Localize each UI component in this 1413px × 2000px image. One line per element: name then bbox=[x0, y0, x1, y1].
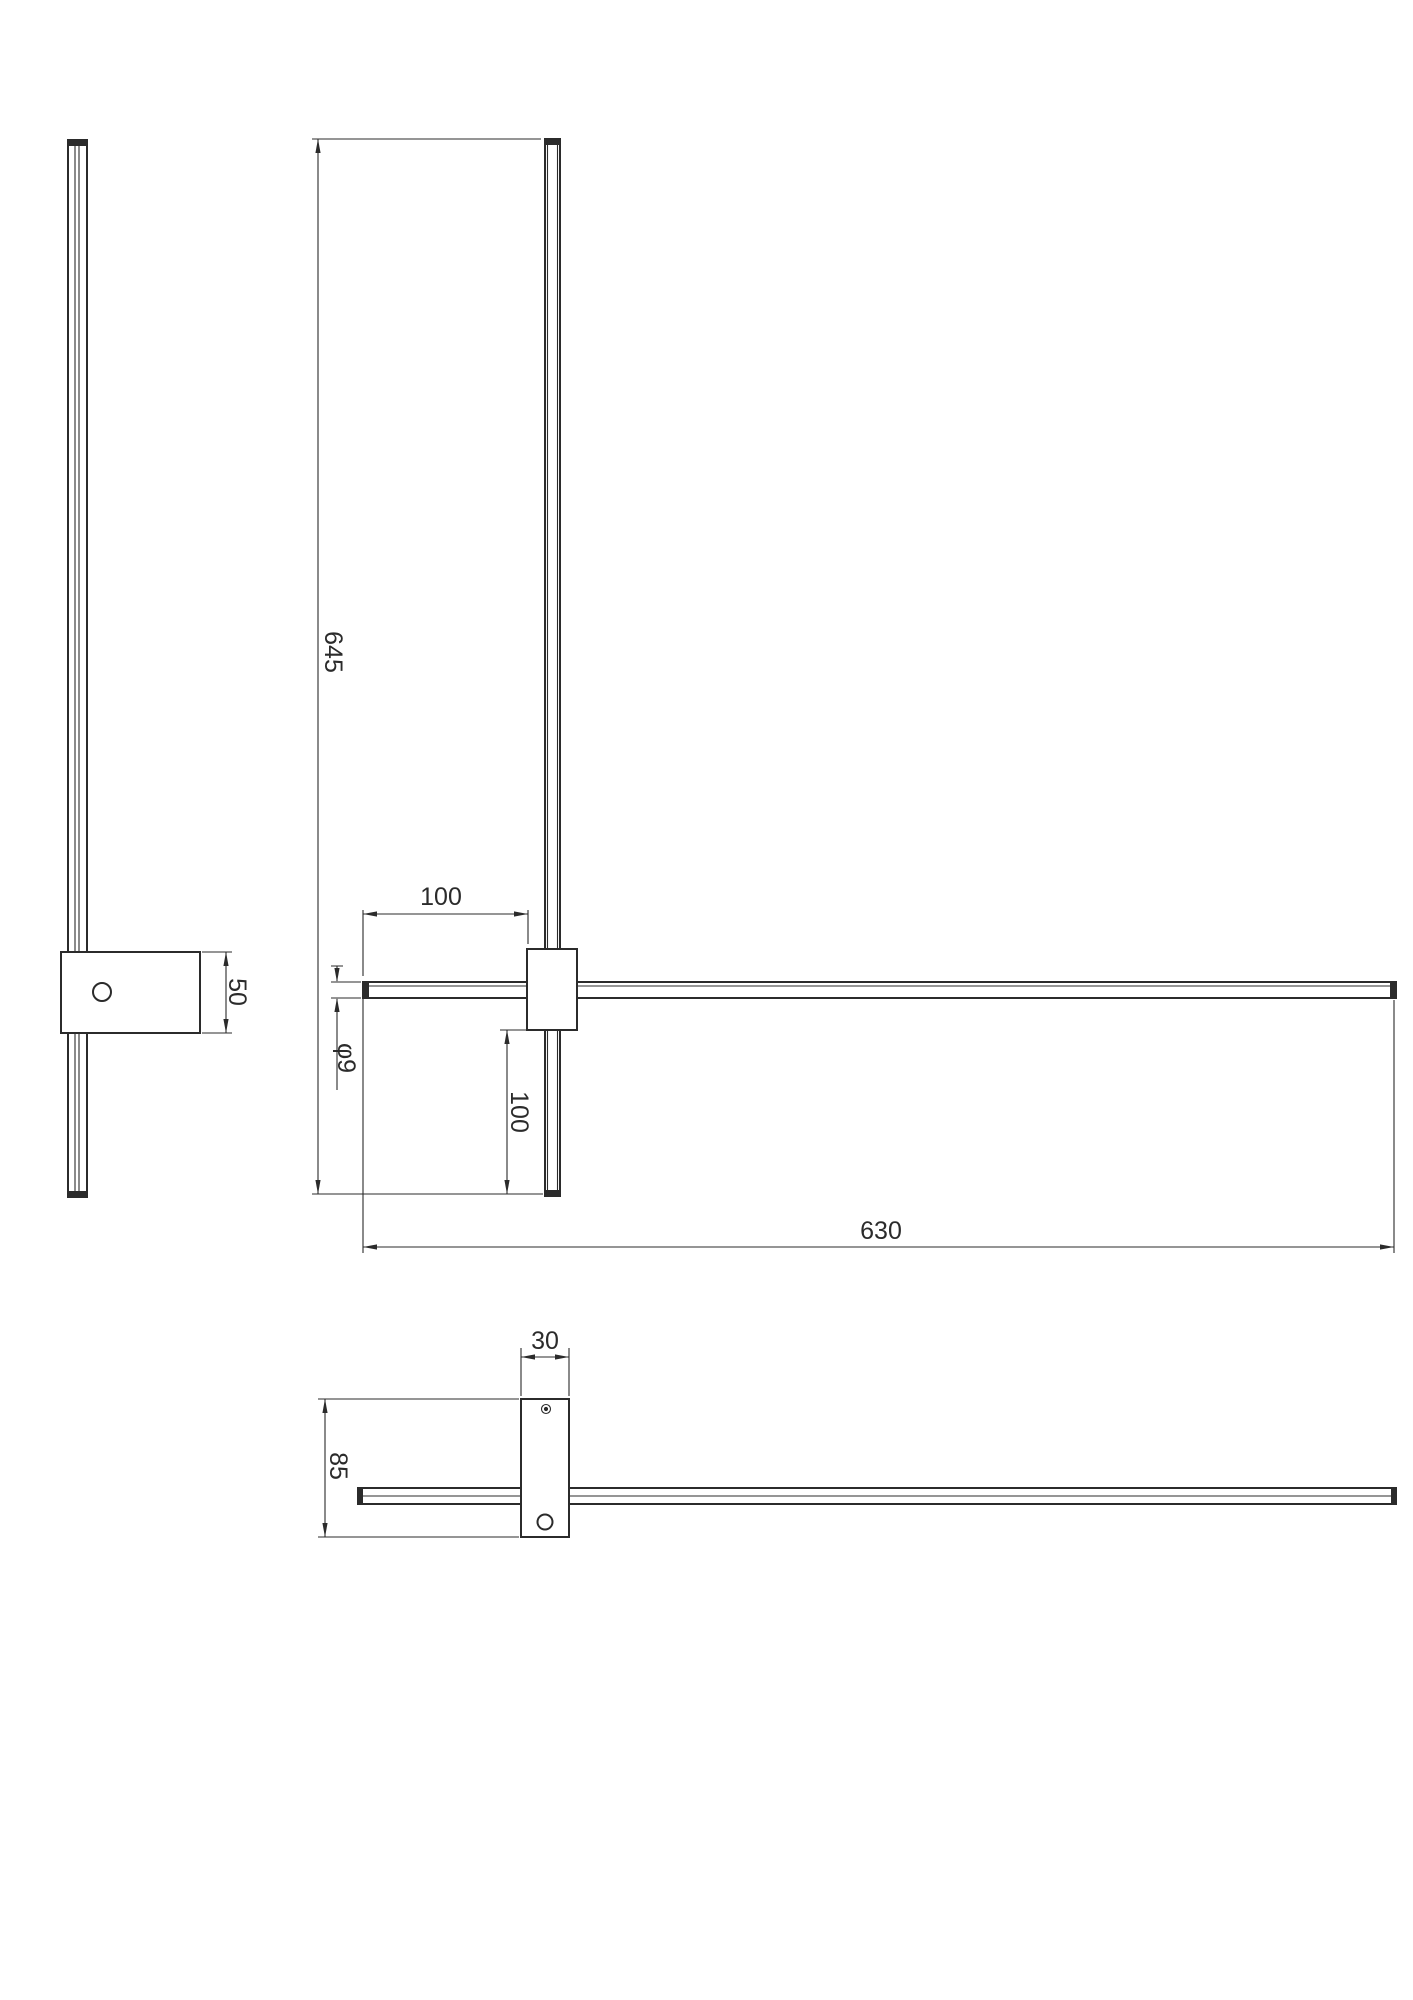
dim-label-bracket-width: 30 bbox=[531, 1327, 559, 1355]
dim-label-bottom-overhang: 100 bbox=[505, 1091, 533, 1133]
dim-bottom-overhang: 100 bbox=[500, 1030, 533, 1194]
front-view: 645 100 φ9 100 630 bbox=[312, 139, 1396, 1253]
front-view-horizontal-bar-left-cap bbox=[363, 982, 369, 998]
front-view-vertical-bar-bottom-cap bbox=[545, 1190, 560, 1196]
top-view-bar-left-cap bbox=[358, 1488, 363, 1504]
dim-label-bar-diameter: φ9 bbox=[332, 1043, 360, 1073]
front-view-junction-box bbox=[527, 949, 577, 1030]
dim-vertical-bar-length: 645 bbox=[312, 139, 543, 1194]
dim-label-horizontal-bar-length: 630 bbox=[860, 1217, 902, 1245]
side-view: 50 bbox=[61, 140, 251, 1197]
dim-label-bracket-depth: 85 bbox=[324, 1452, 352, 1480]
side-view-bar-bottom-cap bbox=[68, 1191, 87, 1197]
dim-bracket-depth: 85 bbox=[318, 1399, 519, 1537]
dim-label-bracket-height: 50 bbox=[223, 978, 251, 1006]
top-view-screw-center bbox=[544, 1407, 548, 1411]
top-view-bar-right-cap bbox=[1391, 1488, 1396, 1504]
front-view-vertical-bar-top-cap bbox=[545, 139, 560, 145]
side-view-light-bar bbox=[68, 140, 87, 1197]
dim-bar-diameter: φ9 bbox=[331, 966, 361, 1090]
top-view-mounting-bracket bbox=[521, 1399, 569, 1537]
dim-bracket-height: 50 bbox=[202, 952, 251, 1033]
dim-bracket-width: 30 bbox=[521, 1327, 569, 1396]
front-view-horizontal-bar bbox=[363, 982, 1396, 998]
side-view-bar-top-cap bbox=[68, 140, 87, 146]
dim-label-vertical-bar-length: 645 bbox=[319, 631, 347, 673]
front-view-horizontal-bar-right-cap bbox=[1390, 982, 1396, 998]
side-view-mounting-bracket bbox=[61, 952, 200, 1033]
dim-left-overhang: 100 bbox=[363, 883, 528, 976]
side-view-bar-seam-lines bbox=[75, 142, 79, 1195]
technical-drawing-page: 50 645 100 bbox=[0, 0, 1413, 2000]
dim-label-left-overhang: 100 bbox=[420, 883, 462, 911]
top-view: 30 85 bbox=[318, 1327, 1396, 1537]
front-view-vertical-bar-seams bbox=[548, 141, 558, 1194]
wall-lamp-dimension-drawing: 50 645 100 bbox=[0, 0, 1413, 2000]
